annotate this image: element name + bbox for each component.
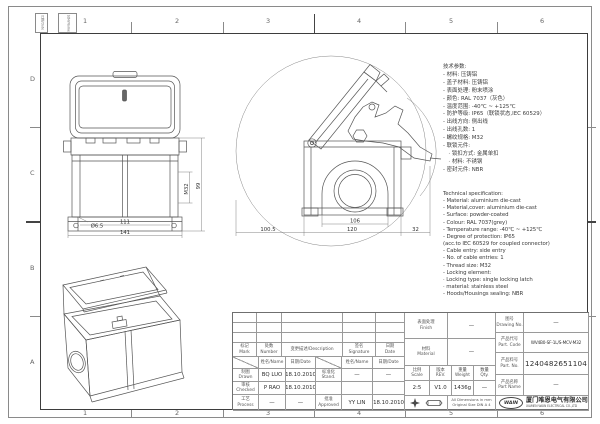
- revision-cell: [257, 323, 282, 333]
- finish-label: 表面处理 Finish: [405, 313, 448, 339]
- subheader-date-2: 日期/Date: [373, 357, 405, 369]
- spec-en-line: - Colour: RAL 7037(grey): [443, 220, 588, 227]
- zone-tick: [588, 316, 596, 317]
- revision-cell: [376, 333, 405, 343]
- revision-header-mark: 标记 Mark: [233, 343, 257, 357]
- spec-cn-line: - 盖子材料: 压铸铝: [443, 80, 588, 88]
- zone-tick: [223, 22, 224, 33]
- process-name: —: [259, 395, 286, 411]
- subheader-date-1: 日期/Date: [286, 357, 316, 369]
- spec-block-cn: 技术参数: - 材料: 压铸铝 - 盖子材料: 压铸铝 - 表面处理: 粉末喷涂…: [443, 64, 588, 175]
- side-view-swing-arc: [236, 56, 436, 246]
- subheader-name-2: 姓名/Name: [342, 357, 373, 369]
- projection-symbols-cell: [405, 396, 448, 411]
- revision-cell: [233, 313, 257, 323]
- symbols: [407, 397, 445, 409]
- zone-tick: [588, 127, 596, 128]
- zone-tick: [405, 22, 406, 33]
- side-view-open-cover: [308, 65, 389, 150]
- stand-name: —: [342, 369, 373, 382]
- drawing-no-label: 图号 Drawing No.: [496, 313, 524, 333]
- spec-cn-line: - 材料: 压铸铝: [443, 72, 588, 80]
- zone-number-top-1: 1: [83, 17, 87, 25]
- spec-block-en: Technical specification: - Material: alu…: [443, 191, 588, 298]
- binding-box-2: 姓名/Name: [58, 13, 77, 33]
- binding-box-1: 日期/Date: [35, 13, 48, 33]
- binding-box-1-label: 日期/Date: [40, 14, 44, 30]
- spec-en-line: - No. of cable entries: 1: [443, 255, 588, 262]
- zone-number-top-4: 4: [357, 17, 361, 25]
- zone-letter-left-2: C: [30, 169, 35, 177]
- spec-en-line: - Surface: powder-coated: [443, 212, 588, 219]
- spec-en-line: - Material: aluminium die-cast: [443, 198, 588, 205]
- revision-cell: [282, 313, 343, 323]
- zone-number-bottom-2: 2: [175, 409, 179, 417]
- process-date: —: [286, 395, 316, 411]
- revision-cell: [376, 323, 405, 333]
- approved-date: 18.10.2010: [373, 395, 405, 411]
- dim-front-outer-width: 141: [120, 230, 130, 236]
- revision-cell: [376, 313, 405, 323]
- dim-side-offset-left: 100.5: [260, 227, 275, 233]
- zone-number-bottom-1: 1: [83, 409, 87, 417]
- spec-en-line: - Temperature range: -40℃ ~ +125℃: [443, 227, 588, 234]
- dim-side-outer-width: 120: [347, 227, 358, 233]
- company-logo: WAIN: [499, 397, 523, 409]
- side-view-locking-lever: [348, 102, 441, 161]
- scale-label: 比例 Scale: [405, 366, 430, 381]
- revision-cell: [343, 313, 376, 323]
- zone-tick: [30, 316, 40, 317]
- zone-number-top-5: 5: [449, 17, 453, 25]
- empty-cell: [316, 382, 342, 395]
- zone-tick: [223, 410, 224, 418]
- spec-cn-line: · 锁扣方式: 金属单扣: [443, 151, 588, 159]
- part-no-label: 产品料号 Part. No.: [496, 353, 524, 375]
- qty-label: 数量 Qty.: [474, 366, 496, 381]
- zone-tick: [497, 410, 498, 418]
- rev-value: V1.0: [430, 381, 452, 396]
- revision-cell: [343, 333, 376, 343]
- drawn-name: BQ LUO: [259, 369, 286, 382]
- front-view-cover: [70, 72, 180, 139]
- centering-mark: [588, 221, 596, 223]
- dim-front-hole: Ø6.5: [91, 223, 104, 230]
- revision-cell: [257, 333, 282, 343]
- projection-symbol-icon: [410, 398, 420, 408]
- drawn-date: 18.10.2010: [286, 369, 316, 382]
- empty-cell: [342, 382, 373, 395]
- dim-front-thread: M32: [184, 183, 190, 194]
- checked-name: P RAO: [259, 382, 286, 395]
- note-line-2: Original Size DIN A 4: [451, 403, 491, 408]
- centering-mark: [314, 14, 316, 33]
- material-value: —: [448, 339, 496, 366]
- company-cell: WAIN 厦门唯恩电气有限公司 XIAMEN WAIN ELECTRICAL C…: [496, 396, 589, 411]
- dim-front-height: 99: [196, 183, 202, 190]
- scale-value: 2:5: [405, 381, 430, 396]
- binding-box-2-label: 姓名/Name: [66, 14, 70, 32]
- spec-cn-line: - 颜色: RAL 7037（灰色）: [443, 96, 588, 104]
- dim-side-inner-width: 106: [350, 219, 361, 225]
- dim-front-inner-width: 111: [120, 220, 130, 226]
- stand-label: 标准化 Stand.: [316, 369, 342, 382]
- stand-date: —: [373, 369, 405, 382]
- revision-header-date: 日期 Date: [376, 343, 405, 357]
- spec-cn-line: - 螺纹规格: M32: [443, 135, 588, 143]
- weight-value: 1436g: [452, 381, 474, 396]
- isometric-view: [50, 262, 215, 408]
- approved-name: YY LIN: [342, 395, 373, 411]
- zone-tick: [30, 127, 40, 128]
- spec-en-line: (acc.to IEC 60529 for coupled connector): [443, 241, 588, 248]
- spec-cn-line: - 密封元件: NBR: [443, 167, 588, 175]
- rev-label: 版本 REV.: [430, 366, 452, 381]
- spec-cn-line: - 表面处理: 粉末喷涂: [443, 88, 588, 96]
- zone-letter-left-3: B: [30, 264, 34, 272]
- zone-tick: [497, 22, 498, 33]
- zone-tick: [131, 22, 132, 33]
- dimension-note-cell: All Dimensions in mm Original Size DIN A…: [448, 396, 496, 411]
- zone-letter-left-4: A: [30, 358, 34, 366]
- checked-label: 审核 Checked: [233, 382, 259, 395]
- spec-cn-line: - 出线孔数: 1: [443, 127, 588, 135]
- front-view: 111 141 Ø6.5 99 M32: [55, 60, 215, 250]
- material-label: 材料 Material: [405, 339, 448, 366]
- side-view-body: [302, 141, 411, 216]
- revision-cell: [282, 323, 343, 333]
- spec-en-line: - Material,cover: aluminium die-cast: [443, 205, 588, 212]
- drawn-label: 制图 Drawn: [233, 369, 259, 382]
- spec-cn-line: - 联锁元件:: [443, 143, 588, 151]
- iso-open-lid: [63, 267, 167, 312]
- diagonal-cell: [233, 357, 259, 369]
- checked-date: 18.10.2010: [286, 382, 316, 395]
- spec-en-line: - Thread size: M32: [443, 263, 588, 270]
- part-name-value: —: [524, 375, 589, 396]
- centering-mark: [26, 221, 40, 223]
- revision-cell: [257, 313, 282, 323]
- drawing-no-value: —: [524, 313, 589, 333]
- zone-number-top-3: 3: [266, 17, 270, 25]
- title-block: 标记 Mark 处数 Number 变更描述/Description 签名 Si…: [232, 312, 589, 410]
- iso-body: [63, 267, 184, 402]
- spec-en-title: Technical specification:: [443, 191, 588, 198]
- zone-number-top-2: 2: [175, 17, 179, 25]
- process-label: 工艺 Process: [233, 395, 259, 411]
- drawing-sheet: 日期/Date 姓名/Name 1 2 3 4 5 6 1 2 3 4 5 6 …: [0, 0, 600, 424]
- weight-label: 重量 Weight: [452, 366, 474, 381]
- revision-cell: [233, 323, 257, 333]
- spec-en-line: · Locking type: single locking latch: [443, 277, 588, 284]
- zone-tick: [405, 410, 406, 418]
- diagonal-cell: [316, 357, 342, 369]
- spec-en-line: - Cable entry: side entry: [443, 248, 588, 255]
- spec-en-line: · material: stainless steel: [443, 284, 588, 291]
- part-code-value: WV4B0-SF-1L/S-MCV-M32: [524, 333, 589, 353]
- revision-cell: [233, 333, 257, 343]
- dim-side-offset-right: 32: [412, 227, 419, 233]
- revision-cell: [343, 323, 376, 333]
- spec-cn-line: · 材料: 不锈钢: [443, 159, 588, 167]
- part-no-value: 1240482651104: [524, 353, 589, 375]
- spec-en-line: - Degree of protection: IP65: [443, 234, 588, 241]
- zone-tick: [131, 410, 132, 418]
- finish-value: —: [448, 313, 496, 339]
- revision-header-signature: 签名 Signature: [343, 343, 376, 357]
- zone-letter-left-1: D: [30, 75, 35, 83]
- paper-size-icon: [426, 401, 442, 406]
- empty-cell: [373, 382, 405, 395]
- zone-number-top-6: 6: [540, 17, 544, 25]
- front-view-hinge-band: [64, 138, 187, 155]
- revision-header-description: 变更描述/Description: [282, 343, 343, 357]
- spec-en-line: - Locking element:: [443, 270, 588, 277]
- subheader-name-1: 姓名/Name: [259, 357, 286, 369]
- approved-label: 批准 Approved: [316, 395, 342, 411]
- company-name-en: XIAMEN WAIN ELECTRICAL CO.,LTD: [526, 404, 588, 408]
- zone-tick: [314, 410, 315, 418]
- part-name-label: 产品名称 Part Name: [496, 375, 524, 396]
- spec-en-line: - Hoods/Housings sealing: NBR: [443, 291, 588, 298]
- part-code-label: 产品代号 Part. Code: [496, 333, 524, 353]
- revision-header-number: 处数 Number: [257, 343, 282, 357]
- revision-cell: [282, 333, 343, 343]
- spec-cn-title: 技术参数:: [443, 64, 588, 72]
- qty-value: —: [474, 381, 496, 396]
- side-view: 106 120 100.5 32: [228, 55, 442, 247]
